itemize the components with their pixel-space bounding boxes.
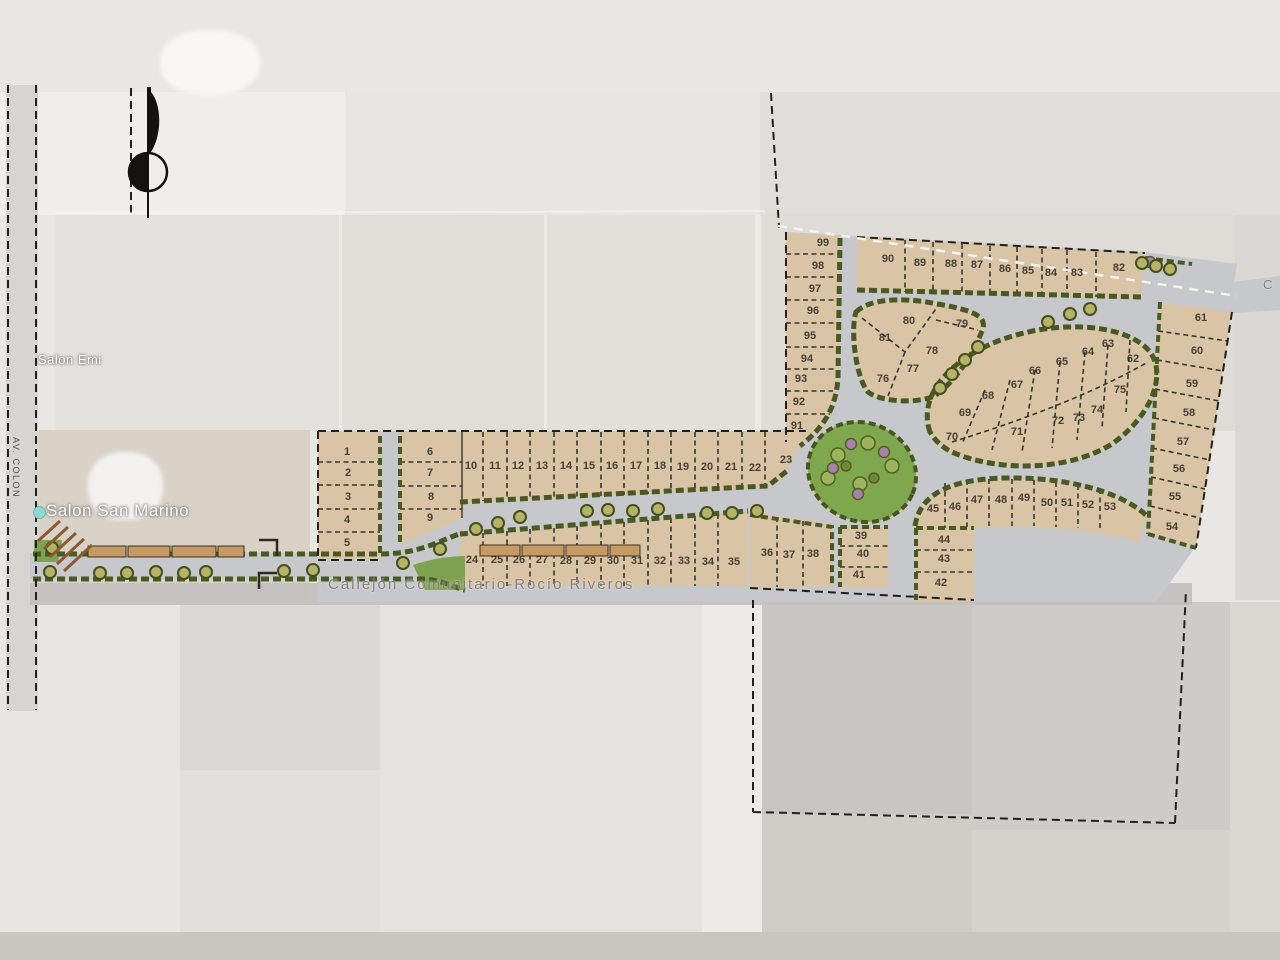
tree-icon bbox=[946, 368, 958, 380]
site-plan-map: AV. COLON Salon Emi Salon San Marino Cal… bbox=[0, 0, 1280, 960]
purple-bush-icon bbox=[846, 439, 857, 450]
tree-icon bbox=[514, 511, 526, 523]
dark-bush-icon bbox=[841, 461, 851, 471]
place-label-salon-emi: Salon Emi bbox=[38, 352, 102, 367]
purple-bush-icon bbox=[853, 489, 864, 500]
tree-icon bbox=[397, 557, 409, 569]
tree-icon bbox=[726, 507, 738, 519]
tree-icon bbox=[751, 505, 763, 517]
tree-icon bbox=[959, 354, 971, 366]
tree-icon bbox=[581, 505, 593, 517]
tree-icon bbox=[278, 565, 290, 577]
tree-icon bbox=[1084, 303, 1096, 315]
place-label-salon-san-marino: Salon San Marino bbox=[46, 501, 189, 521]
tree-icon bbox=[44, 566, 56, 578]
tree-icon bbox=[1136, 257, 1148, 269]
tree-icon bbox=[1150, 260, 1162, 272]
green-bush-icon bbox=[831, 448, 845, 462]
green-bush-icon bbox=[861, 436, 875, 450]
poi-dot-icon bbox=[33, 506, 46, 519]
purple-bush-icon bbox=[879, 447, 890, 458]
tree-icon bbox=[200, 566, 212, 578]
plan-drawing bbox=[0, 0, 1280, 960]
tree-icon bbox=[94, 567, 106, 579]
purple-bush-icon bbox=[828, 463, 839, 474]
tree-icon bbox=[307, 564, 319, 576]
tree-icon bbox=[701, 507, 713, 519]
dark-bush-icon bbox=[869, 473, 879, 483]
tree-icon bbox=[1064, 308, 1076, 320]
tree-icon bbox=[1164, 263, 1176, 275]
street-label-av-colon: AV. COLON bbox=[11, 437, 21, 498]
north-arrow-icon bbox=[129, 87, 167, 218]
tree-icon bbox=[934, 382, 946, 394]
tree-icon bbox=[470, 523, 482, 535]
green-bush-icon bbox=[885, 459, 899, 473]
tree-icon bbox=[627, 505, 639, 517]
tree-icon bbox=[121, 567, 133, 579]
tree-icon bbox=[434, 543, 446, 555]
tree-icon bbox=[972, 341, 984, 353]
street-label-right-edge: C bbox=[1263, 277, 1272, 292]
tree-icon bbox=[178, 567, 190, 579]
tree-icon bbox=[1042, 316, 1054, 328]
tree-icon bbox=[492, 517, 504, 529]
street-label-callejon: Callejón Comunitario-Rocío Riveros bbox=[328, 576, 634, 593]
tree-icon bbox=[150, 566, 162, 578]
tree-icon bbox=[652, 503, 664, 515]
tree-icon bbox=[602, 504, 614, 516]
